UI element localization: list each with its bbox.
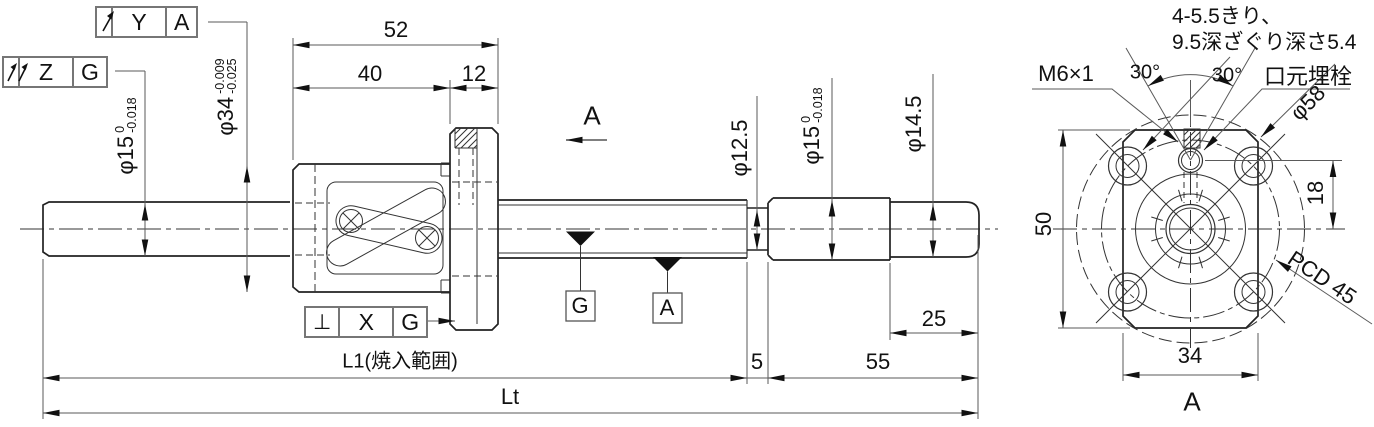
dim-dia14-5: φ14.5: [901, 95, 927, 152]
gdt-datum-label: G: [74, 58, 106, 86]
m6-hole-hatch: [1184, 129, 1200, 148]
datum-g-label: G: [571, 293, 588, 319]
tube-screw-2-cross: [419, 230, 435, 246]
dim-L1: L1(焼入範囲): [342, 345, 458, 374]
nut-boss-notches: [441, 163, 450, 293]
dim-12: 12: [462, 61, 486, 87]
dimension-lines: [43, 22, 978, 419]
gdt-frame-circular-runout: Y A: [95, 6, 198, 38]
tube-screw-1-cross: [343, 213, 359, 229]
dim-34: 34: [1178, 343, 1202, 369]
thread-note: M6×1: [1038, 61, 1094, 87]
perpendicularity-icon: ⊥: [306, 308, 340, 336]
grease-hole-hidden: [459, 148, 473, 205]
angle-right-label: 30°: [1212, 65, 1242, 88]
dim-52: 52: [384, 17, 408, 43]
dim-dia15-right: φ15 0-0.018: [799, 87, 825, 164]
dim-25: 25: [922, 306, 946, 332]
dim-Lt: Lt: [501, 384, 519, 410]
gdt-zone-label: Y: [113, 8, 167, 36]
dim-40: 40: [358, 61, 382, 87]
nut-body-outline: [293, 164, 450, 292]
section-label: A: [583, 101, 600, 132]
drawing-linework: [0, 0, 1374, 427]
gdt-frame-perpendicularity: ⊥ X G: [304, 306, 428, 338]
datum-target-a-triangle: [653, 257, 682, 272]
dim-dia12-5: φ12.5: [727, 119, 753, 176]
dim-dia34: φ34 -0.009-0.025: [213, 58, 239, 135]
dim-dia15-left: φ15 0-0.018: [113, 97, 139, 174]
dim-55: 55: [866, 349, 890, 375]
gdt-datum-label: A: [167, 8, 196, 36]
dim-18: 18: [1303, 181, 1329, 205]
gdt-frame-total-runout: Z G: [2, 56, 108, 88]
grease-hole-hatch: [455, 128, 477, 148]
gdt-datum-label: G: [394, 308, 426, 336]
gdt-zone-label: X: [340, 308, 394, 336]
dim-50: 50: [1031, 212, 1057, 236]
datum-target-g-triangle: [566, 232, 595, 247]
end-view-label: A: [1183, 387, 1200, 418]
dim-5: 5: [751, 349, 763, 375]
total-runout-icon: [4, 58, 20, 86]
counterbore-note: 4-5.5きり、 9.5深ざぐり深さ5.4: [1172, 4, 1356, 56]
circular-runout-icon: [97, 8, 113, 36]
angle-left-label: 30°: [1130, 62, 1160, 85]
datum-a-label: A: [660, 295, 675, 321]
ballscrew-technical-drawing: Y A Z G ⊥ X G 52 40 12 φ34 -0.009-0.025 …: [0, 0, 1374, 427]
